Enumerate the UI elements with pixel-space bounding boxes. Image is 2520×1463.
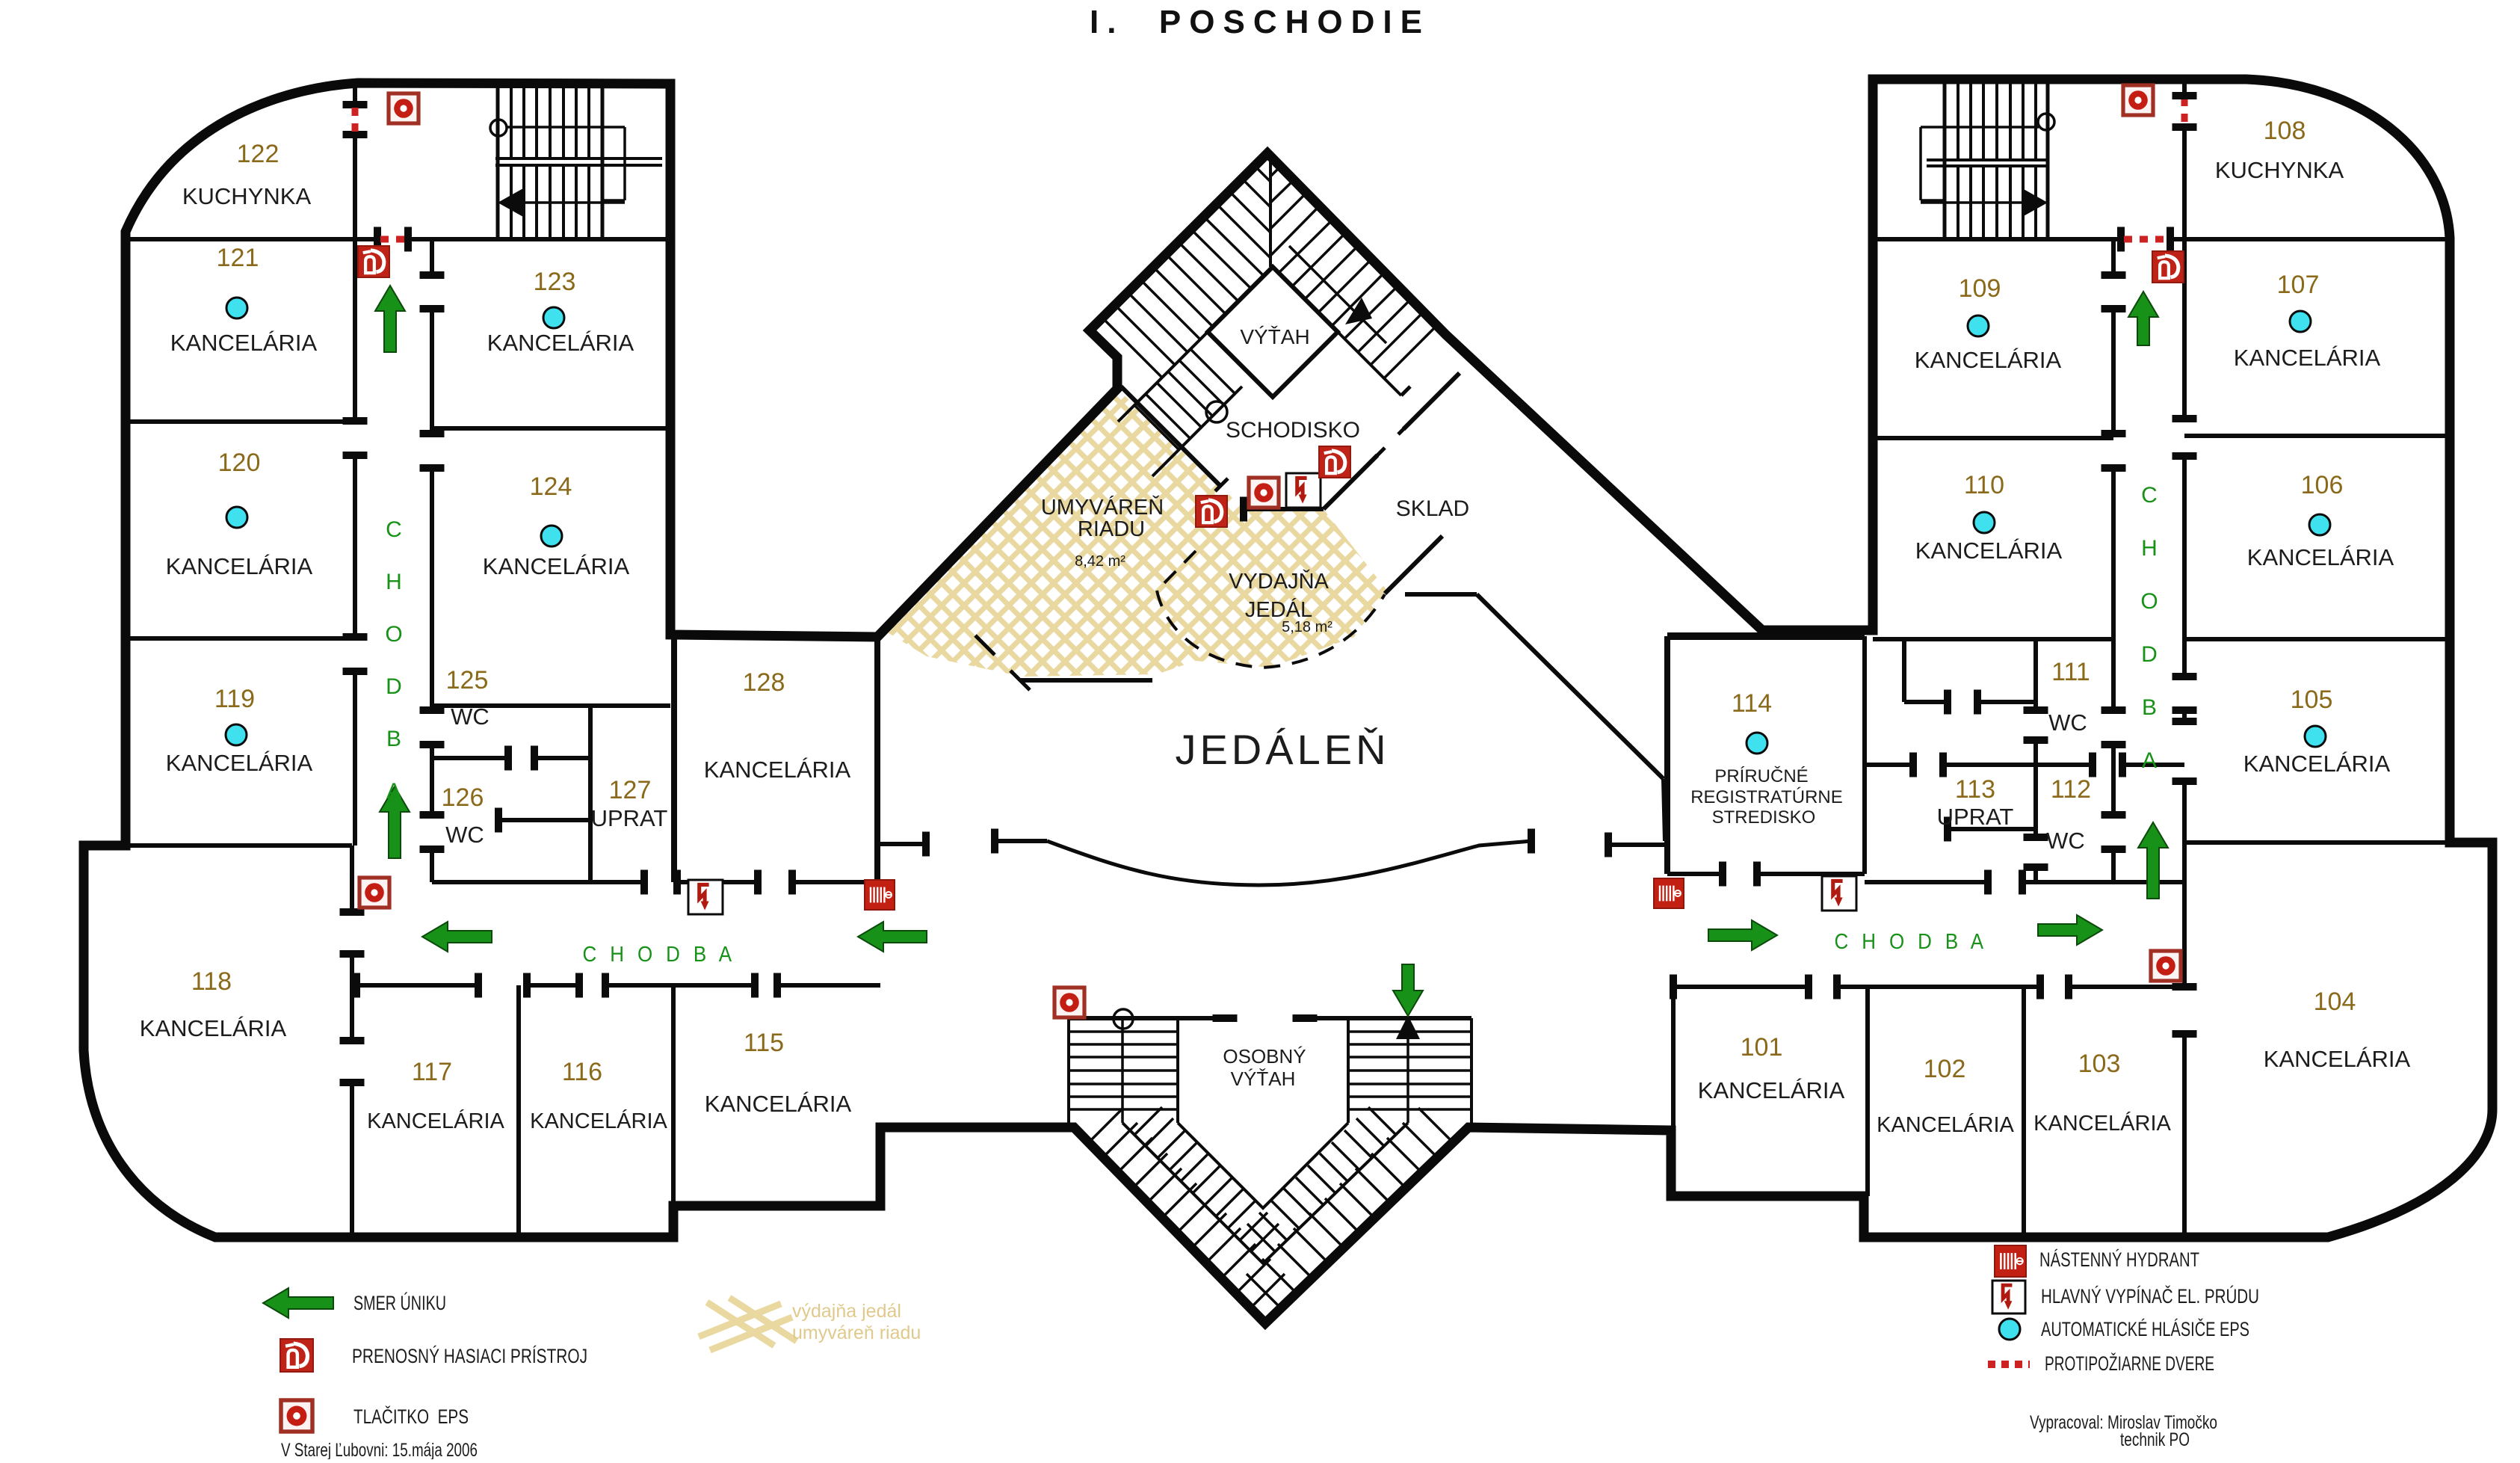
svg-text:105: 105 (2291, 686, 2333, 714)
svg-text:111: 111 (2051, 658, 2090, 686)
svg-text:WC: WC (2048, 709, 2087, 736)
svg-text:KANCELÁRIA: KANCELÁRIA (2247, 544, 2394, 570)
svg-text:KANCELÁRIA: KANCELÁRIA (530, 1109, 667, 1133)
svg-text:KANCELÁRIA: KANCELÁRIA (166, 750, 313, 776)
svg-text:I. POSCHODIE: I. POSCHODIE (1090, 4, 1430, 40)
svg-text:KANCELÁRIA: KANCELÁRIA (704, 757, 851, 783)
svg-text:KANCELÁRIA: KANCELÁRIA (1698, 1077, 1845, 1103)
svg-text:C H O D B A: C H O D B A (1835, 930, 1988, 954)
svg-text:119: 119 (214, 685, 255, 713)
svg-text:127: 127 (609, 776, 652, 804)
svg-text:umyváreň riadu: umyváreň riadu (792, 1322, 921, 1343)
svg-text:O: O (2140, 589, 2158, 614)
svg-text:SCHODISKO: SCHODISKO (1226, 418, 1360, 443)
svg-text:V Starej Ľubovni: 15.mája 2006: V Starej Ľubovni: 15.mája 2006 (281, 1440, 478, 1459)
svg-text:118: 118 (191, 967, 232, 996)
svg-text:107: 107 (2277, 271, 2320, 299)
svg-text:WC: WC (445, 822, 484, 848)
svg-text:UPRAT: UPRAT (591, 805, 668, 831)
svg-text:KANCELÁRIA: KANCELÁRIA (1877, 1112, 2014, 1137)
svg-text:PROTIPOŽIARNE DVERE: PROTIPOŽIARNE DVERE (2045, 1352, 2214, 1375)
svg-text:STREDISKO: STREDISKO (1712, 807, 1816, 828)
svg-text:KUCHYNKA: KUCHYNKA (2215, 157, 2344, 183)
svg-text:KANCELÁRIA: KANCELÁRIA (140, 1015, 287, 1041)
svg-text:113: 113 (1955, 775, 1995, 804)
svg-text:116: 116 (562, 1058, 602, 1086)
svg-text:106: 106 (2301, 471, 2344, 499)
svg-text:123: 123 (534, 268, 576, 296)
svg-text:KANCELÁRIA: KANCELÁRIA (2264, 1046, 2411, 1072)
svg-text:C H O D B A: C H O D B A (583, 943, 736, 967)
svg-text:PRÍRUČNÉ: PRÍRUČNÉ (1714, 766, 1808, 786)
svg-text:KANCELÁRIA: KANCELÁRIA (2234, 345, 2381, 371)
svg-text:103: 103 (2078, 1050, 2121, 1078)
svg-text:KANCELÁRIA: KANCELÁRIA (1915, 347, 2062, 373)
svg-text:D: D (386, 674, 402, 699)
svg-text:101: 101 (1741, 1033, 1783, 1062)
svg-text:B: B (2142, 695, 2157, 720)
svg-text:KANCELÁRIA: KANCELÁRIA (705, 1091, 852, 1117)
svg-text:A: A (2142, 748, 2157, 773)
svg-text:UMYVÁREŇ: UMYVÁREŇ (1041, 495, 1164, 520)
svg-text:výdajňa jedál: výdajňa jedál (792, 1301, 901, 1322)
svg-text:B: B (386, 727, 401, 751)
svg-text:PRENOSNÝ HASIACI PRÍSTROJ: PRENOSNÝ HASIACI PRÍSTROJ (352, 1345, 587, 1367)
svg-text:H: H (2141, 536, 2158, 561)
svg-text:OSOBNÝ: OSOBNÝ (1223, 1045, 1306, 1068)
svg-text:SMER ÚNIKU: SMER ÚNIKU (353, 1291, 446, 1314)
svg-text:117: 117 (412, 1058, 452, 1086)
svg-text:KANCELÁRIA: KANCELÁRIA (2243, 751, 2391, 777)
svg-text:115: 115 (744, 1029, 784, 1057)
svg-text:110: 110 (1964, 471, 2004, 499)
svg-text:JEDÁLEŇ: JEDÁLEŇ (1175, 726, 1389, 773)
svg-text:124: 124 (530, 472, 572, 501)
svg-text:128: 128 (743, 668, 785, 697)
svg-text:UPRAT: UPRAT (1937, 804, 2014, 830)
svg-text:SKLAD: SKLAD (1396, 496, 1469, 521)
svg-text:technik PO: technik PO (2120, 1429, 2190, 1450)
svg-text:WC: WC (2046, 828, 2085, 854)
svg-text:A: A (386, 779, 401, 804)
svg-text:KANCELÁRIA: KANCELÁRIA (166, 553, 313, 579)
svg-text:112: 112 (2051, 775, 2091, 804)
svg-text:AUTOMATICKÉ HLÁSIČE EPS: AUTOMATICKÉ HLÁSIČE EPS (2041, 1317, 2249, 1340)
svg-text:5,18 m²: 5,18 m² (1282, 619, 1332, 635)
svg-text:114: 114 (1732, 689, 1772, 718)
svg-text:VÝŤAH: VÝŤAH (1240, 325, 1309, 348)
svg-text:WC: WC (451, 703, 490, 730)
svg-text:121: 121 (217, 244, 259, 272)
svg-text:D: D (2141, 642, 2158, 667)
svg-text:REGISTRATÚRNE: REGISTRATÚRNE (1690, 787, 1843, 807)
svg-text:KANCELÁRIA: KANCELÁRIA (1915, 538, 2063, 564)
svg-text:C: C (386, 517, 402, 542)
svg-text:125: 125 (446, 666, 489, 694)
svg-text:TLAČITKO EPS: TLAČITKO EPS (353, 1405, 469, 1428)
svg-text:H: H (386, 570, 402, 594)
svg-text:KANCELÁRIA: KANCELÁRIA (170, 330, 318, 356)
svg-text:122: 122 (237, 140, 280, 168)
svg-text:109: 109 (1959, 274, 2001, 303)
svg-text:KUCHYNKA: KUCHYNKA (182, 183, 312, 209)
svg-text:KANCELÁRIA: KANCELÁRIA (483, 553, 630, 579)
svg-text:O: O (385, 622, 402, 647)
svg-text:VÝŤAH: VÝŤAH (1231, 1068, 1296, 1090)
svg-text:104: 104 (2314, 988, 2356, 1016)
svg-text:120: 120 (218, 449, 261, 477)
svg-text:102: 102 (1924, 1055, 1966, 1083)
svg-text:8,42 m²: 8,42 m² (1075, 553, 1125, 570)
svg-text:KANCELÁRIA: KANCELÁRIA (367, 1109, 504, 1133)
svg-text:C: C (2141, 483, 2158, 508)
svg-text:VYDAJŇA: VYDAJŇA (1229, 569, 1329, 594)
svg-text:126: 126 (442, 783, 484, 812)
svg-text:HLAVNÝ VYPÍNAČ EL. PRÚDU: HLAVNÝ VYPÍNAČ EL. PRÚDU (2041, 1284, 2259, 1308)
svg-text:NÁSTENNÝ HYDRANT: NÁSTENNÝ HYDRANT (2039, 1248, 2199, 1271)
svg-text:RIADU: RIADU (1078, 517, 1145, 541)
svg-text:108: 108 (2264, 117, 2306, 145)
svg-text:KANCELÁRIA: KANCELÁRIA (487, 330, 634, 356)
svg-text:KANCELÁRIA: KANCELÁRIA (2033, 1111, 2171, 1136)
